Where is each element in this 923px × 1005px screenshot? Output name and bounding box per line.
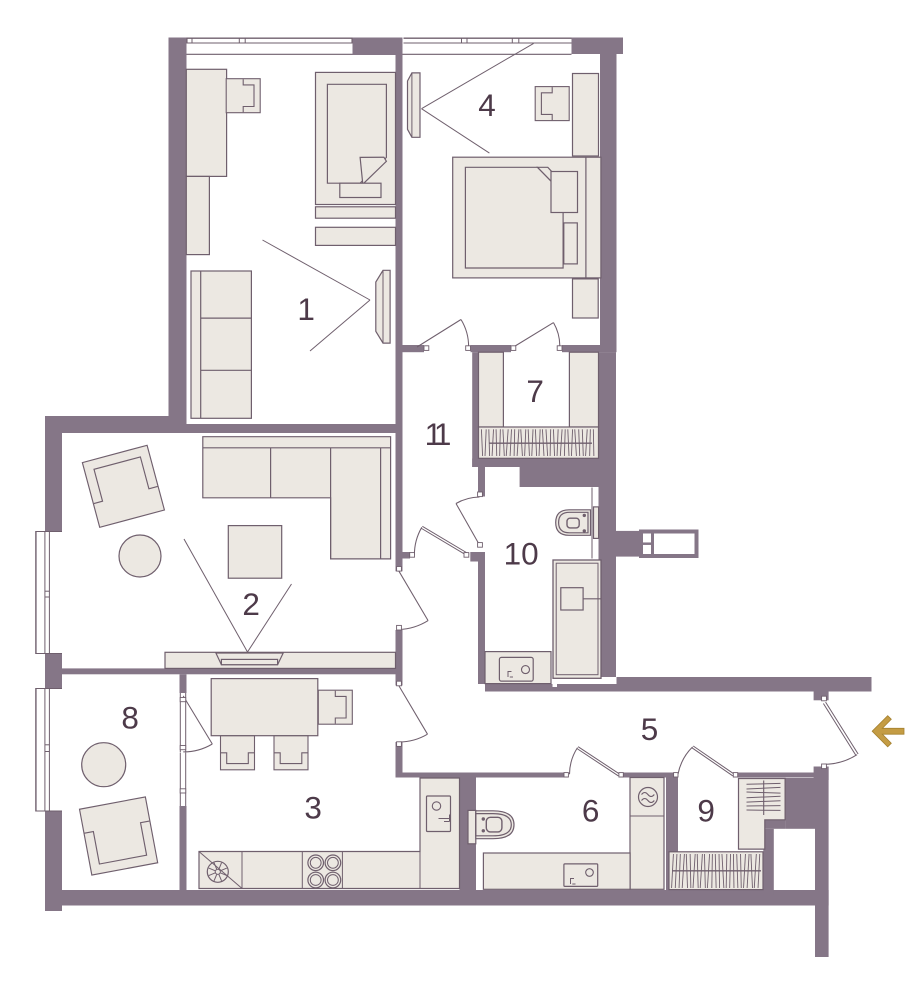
svg-text:6: 6 [582,793,600,829]
svg-text:1: 1 [297,291,315,327]
svg-text:10: 10 [504,535,539,571]
svg-text:5: 5 [641,711,659,747]
svg-text:11: 11 [425,416,450,452]
svg-text:9: 9 [697,793,715,829]
svg-text:3: 3 [304,789,322,825]
svg-text:4: 4 [478,87,496,123]
svg-text:2: 2 [242,586,260,622]
svg-text:8: 8 [121,700,139,736]
svg-text:7: 7 [526,373,544,409]
